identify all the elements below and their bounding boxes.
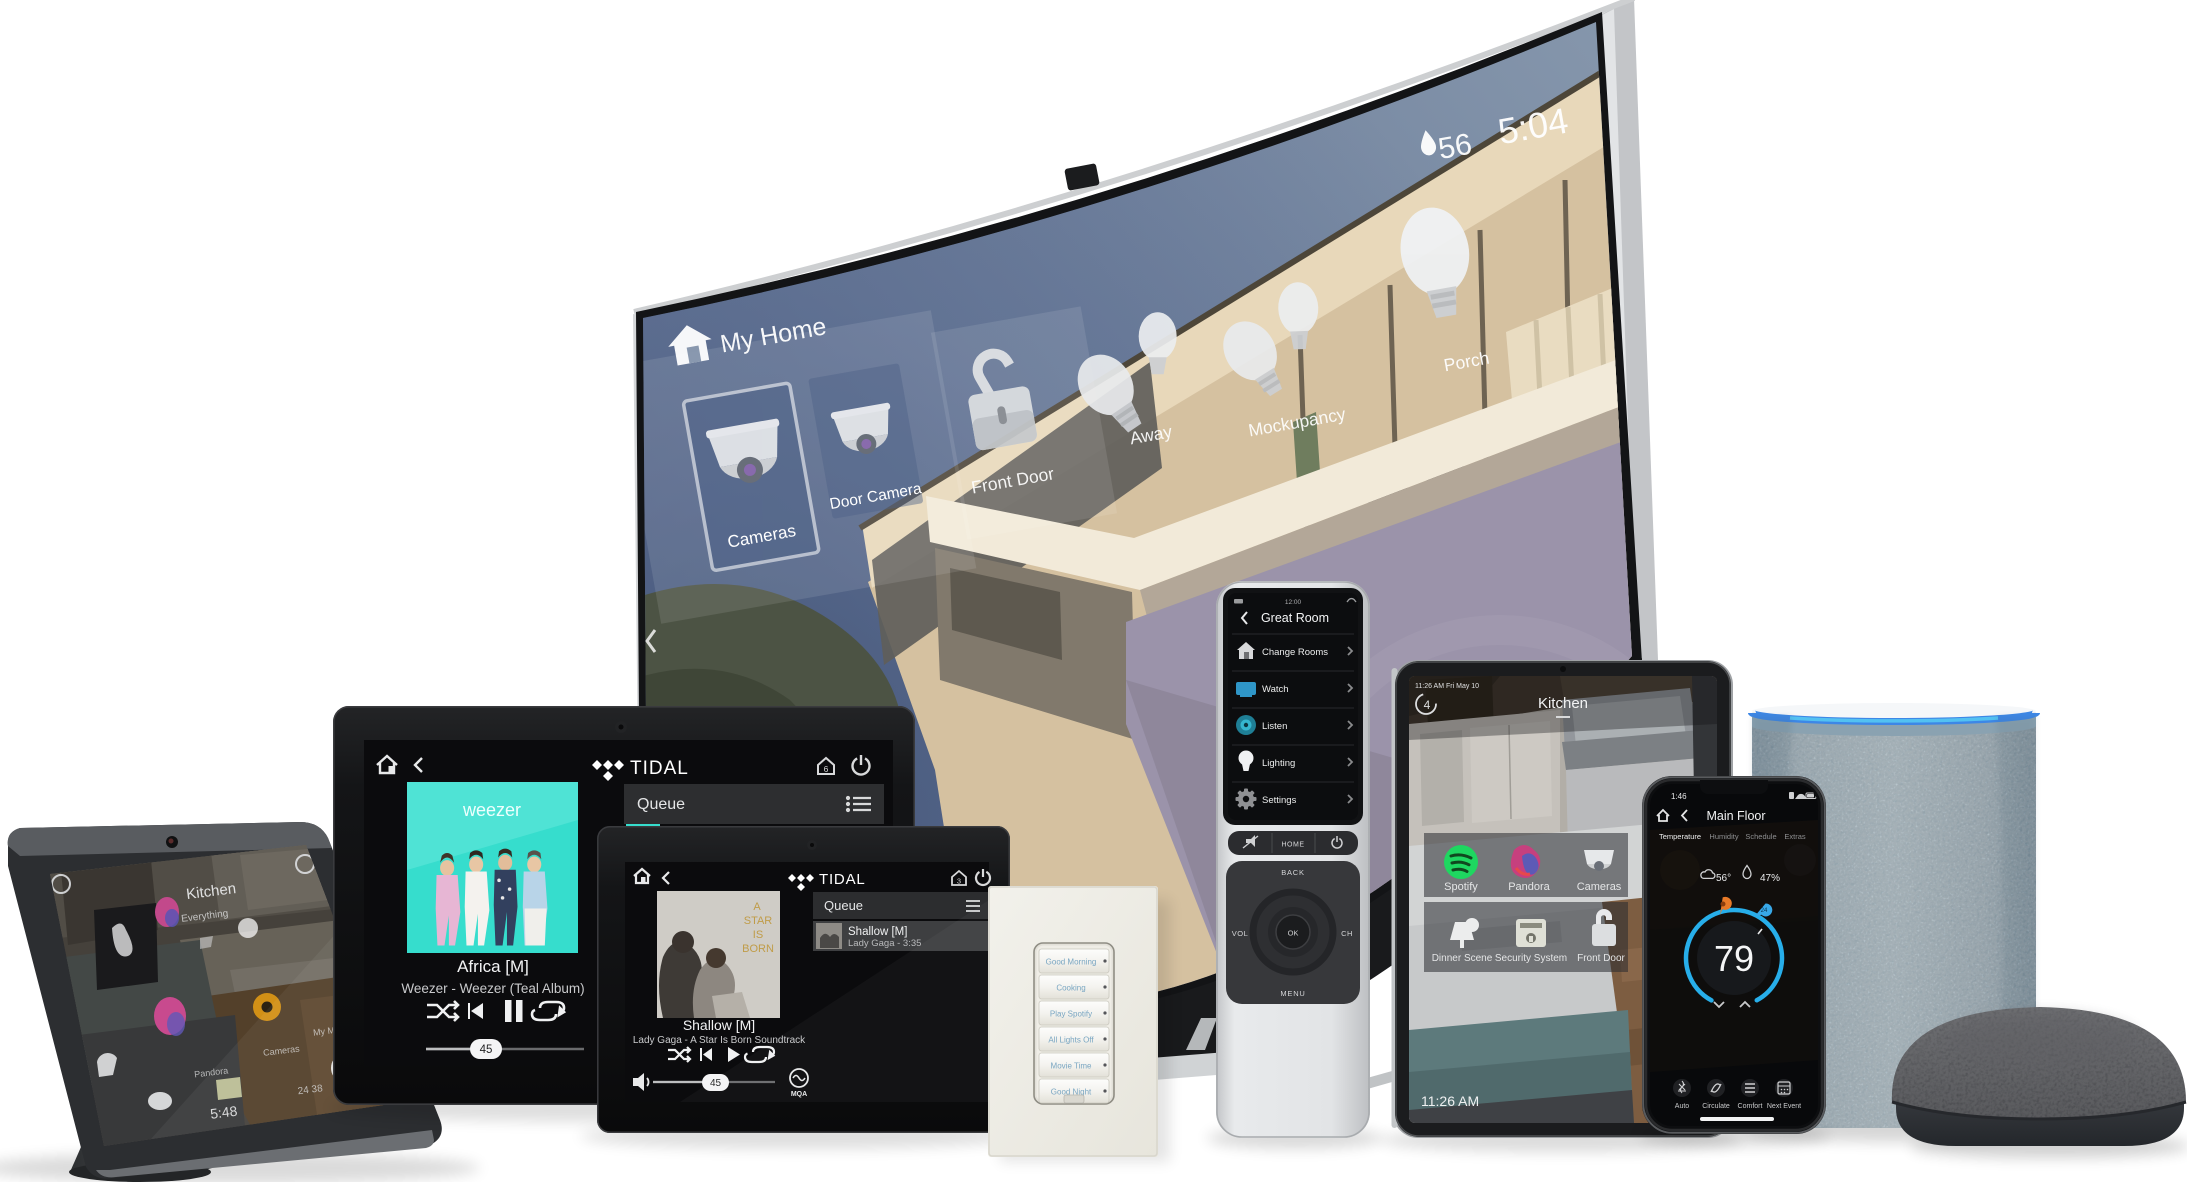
svg-text:Change Rooms: Change Rooms (1262, 647, 1328, 658)
svg-text:Queue: Queue (637, 796, 685, 813)
svg-text:Settings: Settings (1262, 795, 1297, 806)
svg-text:A: A (753, 901, 761, 913)
svg-text:11:26 AM Fri May 10: 11:26 AM Fri May 10 (1415, 683, 1479, 690)
svg-text:Security System: Security System (1495, 953, 1567, 964)
svg-text:Listen: Listen (1262, 721, 1287, 732)
svg-text:Lady Gaga - 3:35: Lady Gaga - 3:35 (848, 938, 921, 949)
svg-text:VOL: VOL (1232, 929, 1249, 938)
svg-text:Temperature: Temperature (1659, 832, 1701, 841)
svg-text:Queue: Queue (824, 898, 863, 913)
svg-text:3: 3 (957, 877, 961, 886)
svg-text:4: 4 (1424, 698, 1431, 712)
svg-text:BORN: BORN (742, 943, 774, 955)
svg-text:Extras: Extras (1784, 832, 1806, 841)
svg-text:Kitchen: Kitchen (1538, 695, 1588, 712)
svg-text:12:00: 12:00 (1285, 599, 1302, 606)
svg-text:BACK: BACK (1281, 868, 1305, 877)
svg-text:HOME: HOME (1282, 842, 1305, 849)
svg-text:Circulate: Circulate (1702, 1103, 1730, 1110)
svg-text:24: 24 (1761, 908, 1768, 914)
svg-text:CH: CH (1341, 929, 1353, 938)
svg-text:STAR: STAR (744, 915, 773, 927)
svg-text:47%: 47% (1760, 873, 1780, 884)
svg-text:Humidity: Humidity (1709, 832, 1738, 841)
svg-text:IS: IS (753, 929, 763, 941)
svg-text:Watch: Watch (1262, 684, 1289, 695)
svg-text:weezer: weezer (462, 800, 521, 820)
svg-text:79: 79 (1714, 938, 1754, 979)
svg-text:Good Morning: Good Morning (1046, 958, 1097, 967)
svg-text:Schedule: Schedule (1745, 832, 1776, 841)
svg-text:Dinner Scene: Dinner Scene (1432, 953, 1493, 964)
svg-text:Great Room: Great Room (1261, 611, 1329, 625)
svg-text:11:26 AM: 11:26 AM (1421, 1093, 1479, 1109)
svg-text:56: 56 (1436, 128, 1475, 166)
svg-text:Africa [M]: Africa [M] (457, 957, 529, 976)
svg-text:Cooking: Cooking (1056, 984, 1085, 993)
svg-text:All Lights Off: All Lights Off (1048, 1036, 1094, 1045)
svg-text:OK: OK (1288, 929, 1299, 938)
svg-text:Front Door: Front Door (1577, 953, 1625, 964)
svg-text:Pandora: Pandora (1508, 881, 1550, 893)
svg-text:Lighting: Lighting (1262, 758, 1295, 769)
svg-text:6: 6 (824, 764, 829, 774)
svg-text:Shallow [M]: Shallow [M] (848, 926, 907, 938)
svg-text:Auto: Auto (1675, 1103, 1690, 1110)
svg-text:Cameras: Cameras (1577, 881, 1622, 893)
svg-text:Movie Time: Movie Time (1051, 1062, 1092, 1071)
svg-text:56°: 56° (1716, 873, 1731, 884)
svg-text:Spotify: Spotify (1444, 881, 1478, 893)
svg-text:45: 45 (480, 1044, 493, 1056)
svg-text:Play Spotify: Play Spotify (1050, 1010, 1092, 1019)
svg-text:Main Floor: Main Floor (1706, 809, 1765, 823)
svg-text:TIDAL: TIDAL (630, 758, 689, 779)
svg-text:MENU: MENU (1280, 989, 1305, 998)
svg-text:Shallow [M]: Shallow [M] (683, 1017, 755, 1033)
svg-text:1:46: 1:46 (1671, 792, 1687, 801)
svg-text:TIDAL: TIDAL (819, 871, 866, 888)
svg-text:Next Event: Next Event (1767, 1103, 1801, 1110)
svg-text:Weezer - Weezer (Teal Album): Weezer - Weezer (Teal Album) (401, 981, 584, 996)
svg-text:Comfort: Comfort (1738, 1103, 1763, 1110)
